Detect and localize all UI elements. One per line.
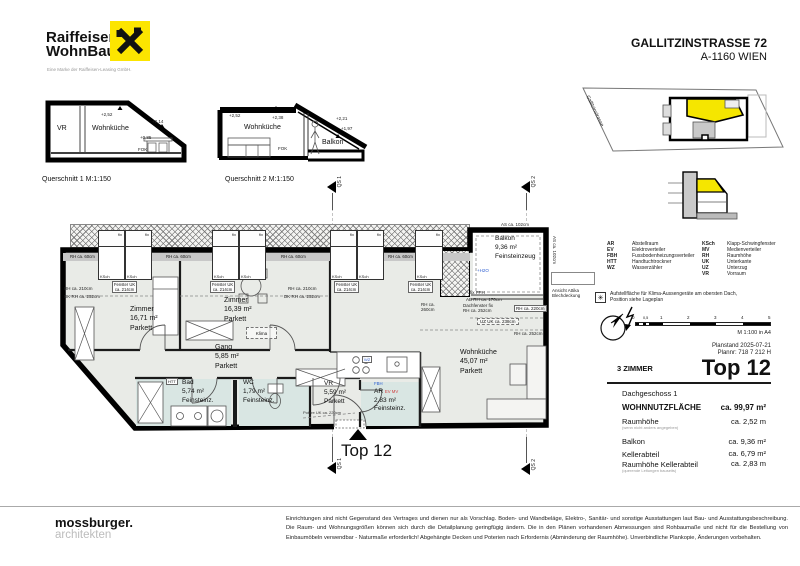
project-title: GALLITZINSTRASSE 72 — [631, 36, 767, 50]
annotation-as102-vertical: AS ca. 102cm — [552, 236, 557, 264]
fix-glazing: fix — [126, 231, 151, 247]
climate-unit-icon: ✳ — [595, 292, 606, 303]
building-section-key — [663, 168, 743, 223]
architect-name: mossburger. — [55, 515, 133, 530]
section-marker-icon — [327, 181, 336, 193]
qs1-level-3: +0,85 — [140, 135, 151, 140]
annotation-rh252: RH ca. 252cm — [514, 331, 543, 336]
scale-tick: 0,5 — [643, 316, 648, 320]
window-sill-label: Fenster UKca. 214cm — [112, 281, 137, 293]
annotation-rh210: RH ca. 210cm — [288, 286, 317, 291]
balcony-label: Balkon — [622, 437, 645, 447]
scale-tick: 3 — [714, 315, 717, 320]
annotation-h2o: +H2O — [477, 268, 489, 273]
annotation-rh60: RH ca. 60cm — [388, 254, 413, 259]
annotation-potere: Potere UK ca. 220cm — [303, 410, 341, 415]
room-wohnkueche: Wohnküche45,07 m²Parkett — [460, 348, 497, 376]
htt-label: HTT — [166, 378, 178, 385]
section-marker-line — [526, 193, 527, 210]
ksch-window: KSch — [99, 247, 124, 279]
annotation-as102: AS ca. 102cm — [500, 222, 530, 227]
cellar-height-value: ca. 2,83 m — [731, 459, 766, 469]
fbh-label: FBH — [374, 381, 383, 386]
annotation-rh60: RH ca. 60cm — [70, 254, 95, 259]
brand-name-line2: WohnBau — [46, 45, 118, 59]
cross-section-2 — [216, 98, 371, 172]
qs2-level-4: +1,97 — [341, 126, 352, 131]
section-marker-qs1: QS 1 — [337, 458, 343, 469]
architect-subtitle: architekten — [55, 529, 111, 541]
legend-term: Wasserzähler — [632, 266, 662, 272]
qs1-room-wohnkueche: Wohnküche — [92, 124, 129, 133]
annotation-rh260-line2: 260cm — [421, 307, 435, 312]
qs1-level-1: +2,52 — [101, 112, 112, 117]
qs1-caption: Querschnitt 1 M:1:150 — [42, 175, 111, 184]
room-wc: WC1,79 m²Feinsteinz. — [243, 379, 274, 405]
roof-window: fix KSch — [125, 230, 152, 280]
balcony-value: ca. 9,36 m² — [728, 437, 766, 447]
roof-window: fix KSch — [357, 230, 384, 280]
window-sill-label: Fenster UKca. 214cm — [334, 281, 359, 293]
fix-glazing: fix — [416, 231, 442, 247]
roof-window: fix KSch — [415, 230, 443, 280]
cross-section-1 — [44, 98, 192, 170]
cellar-label: Kellerabteil — [622, 450, 659, 460]
divider — [607, 382, 771, 384]
ksch-window: KSch — [213, 247, 238, 279]
room-height-note: (wenn nicht anders angegeben) — [622, 426, 678, 431]
entrance-arrow-icon — [349, 429, 367, 440]
fix-glazing: fix — [213, 231, 238, 247]
scale-tick: 5 — [768, 315, 771, 320]
qs2-room-balkon: Balkon — [322, 138, 343, 147]
section-marker-icon — [521, 463, 530, 475]
wz-label: WZ — [362, 356, 372, 363]
qs2-caption: Querschnitt 2 M:1:150 — [225, 175, 294, 184]
scale-tick: 0 — [632, 315, 635, 320]
floor-label: Dachgeschoss 1 — [622, 389, 677, 399]
floor-plan-sheet: Raiffeisen WohnBau Eine Marke der Raiffe… — [0, 0, 800, 566]
project-city: A-1160 WIEN — [701, 51, 767, 63]
scale-tick: 4 — [741, 315, 744, 320]
qs1-level-4: FOK — [138, 147, 147, 152]
room-bad: Bad5,74 m²Feinsteinz. — [182, 379, 213, 405]
room-ar: FBH AR EV MV 2,83 m² Feinsteinz. — [374, 380, 405, 414]
ksch-window: KSch — [358, 247, 383, 279]
climate-note-line2: Position siehe Lageplan — [610, 298, 663, 304]
ev-mv-label: EV MV — [385, 389, 398, 394]
room-height-value: ca. 2,52 m — [731, 417, 766, 427]
klima-unit-box: Klima — [246, 327, 277, 339]
legend-abbr: VR — [702, 272, 709, 278]
brand-logo: Raiffeisen WohnBau — [46, 31, 118, 60]
ksch-window: KSch — [416, 247, 442, 279]
qs2-level-5: FOK — [278, 146, 287, 151]
section-marker-icon — [327, 462, 336, 474]
fix-glazing: fix — [331, 231, 356, 247]
section-marker-qs2: QS 2 — [531, 176, 537, 187]
fix-glazing: fix — [99, 231, 124, 247]
room-zimmer-1: Zimmer16,71 m²Parkett — [130, 305, 158, 333]
annotation-attika-line2: Blechdeckung — [552, 293, 580, 298]
qs2-level-2: +2,38 — [272, 115, 283, 120]
annotation-dkrh252: DK RH ca. 252cm — [284, 294, 320, 299]
scale-note: M 1:100 in A4 — [737, 330, 771, 337]
roof-window: fix KSch — [98, 230, 125, 280]
qs2-level-3: +2,21 — [336, 116, 347, 121]
scale-bar — [635, 322, 771, 326]
room-zimmer-2: Zimmer16,39 m²Parkett — [224, 296, 252, 324]
cellar-value: ca. 6,79 m² — [728, 449, 766, 459]
section-marker-line — [332, 193, 333, 210]
footer-divider — [0, 506, 800, 507]
qs2-room-wohnkueche: Wohnküche — [244, 123, 281, 132]
annotation-uzuk238: UZ UK ca. 238cm — [477, 318, 519, 325]
cellar-height-note: (querende Leitungen bauseits) — [622, 469, 676, 474]
annotation-rh220: RH ca. 220cm — [514, 305, 547, 312]
room-balkon: Balkon9,36 m²Feinsteinzeug — [495, 235, 535, 261]
legend-abbr: WZ — [607, 266, 615, 272]
section-marker-line — [526, 437, 527, 463]
section-marker-line — [332, 437, 333, 462]
roof-window: fix KSch — [212, 230, 239, 280]
roof-window: fix KSch — [239, 230, 266, 280]
rooms-count: 3 ZIMMER — [617, 364, 653, 373]
room-vr: VR5,59 m²Parkett — [324, 380, 346, 406]
annotation-dkrh252: DK RH ca. 252cm — [64, 294, 100, 299]
ksch-window: KSch — [126, 247, 151, 279]
brand-tagline: Eine Marke der Raiffeisen-Leasing GmbH. — [47, 67, 131, 72]
section-marker-qs2: QS 2 — [531, 459, 537, 470]
fix-glazing: fix — [240, 231, 265, 247]
scale-tick: 2 — [687, 315, 690, 320]
legend-term: Vorraum — [727, 272, 746, 278]
qs1-level-2: +2,14 — [152, 119, 163, 124]
qs1-room-vr: VR — [57, 124, 67, 133]
annotation-abrh170: AB RH ca. 170cm — [466, 297, 502, 302]
attika-elevation-key — [551, 272, 595, 285]
fix-glazing: fix — [358, 231, 383, 247]
annotation-rh60: RH ca. 60cm — [281, 254, 306, 259]
annotation-fixfph: fix FPH — [470, 290, 485, 295]
window-sill-label: Fenster UKca. 214cm — [408, 281, 433, 293]
ksch-window: KSch — [331, 247, 356, 279]
scale-tick: 1 — [660, 315, 663, 320]
annotation-rh210: RH ca. 210cm — [64, 286, 93, 291]
section-marker-qs1: QS 1 — [337, 176, 343, 187]
raiffeisen-gable-cross-icon — [110, 21, 150, 61]
living-area-value: ca. 99,97 m² — [721, 403, 766, 412]
annotation-rh60: RH ca. 60cm — [166, 254, 191, 259]
entrance-label: Top 12 — [341, 441, 392, 461]
footer-disclaimer: Einrichtungen sind nicht Gegenstand des … — [286, 515, 788, 543]
roof-window: fix KSch — [330, 230, 357, 280]
ksch-window: KSch — [240, 247, 265, 279]
window-sill-label: Fenster UKca. 214cm — [210, 281, 235, 293]
living-area-label: WOHNNUTZFLÄCHE — [622, 403, 701, 412]
qs2-level-1: +2,52 — [229, 113, 240, 118]
section-marker-icon — [521, 181, 530, 193]
room-gang: Gang5,85 m²Parkett — [215, 343, 239, 371]
unit-title: Top 12 — [702, 355, 771, 381]
annotation-dachfenster-rh: RH ca. 252cm — [463, 308, 492, 313]
